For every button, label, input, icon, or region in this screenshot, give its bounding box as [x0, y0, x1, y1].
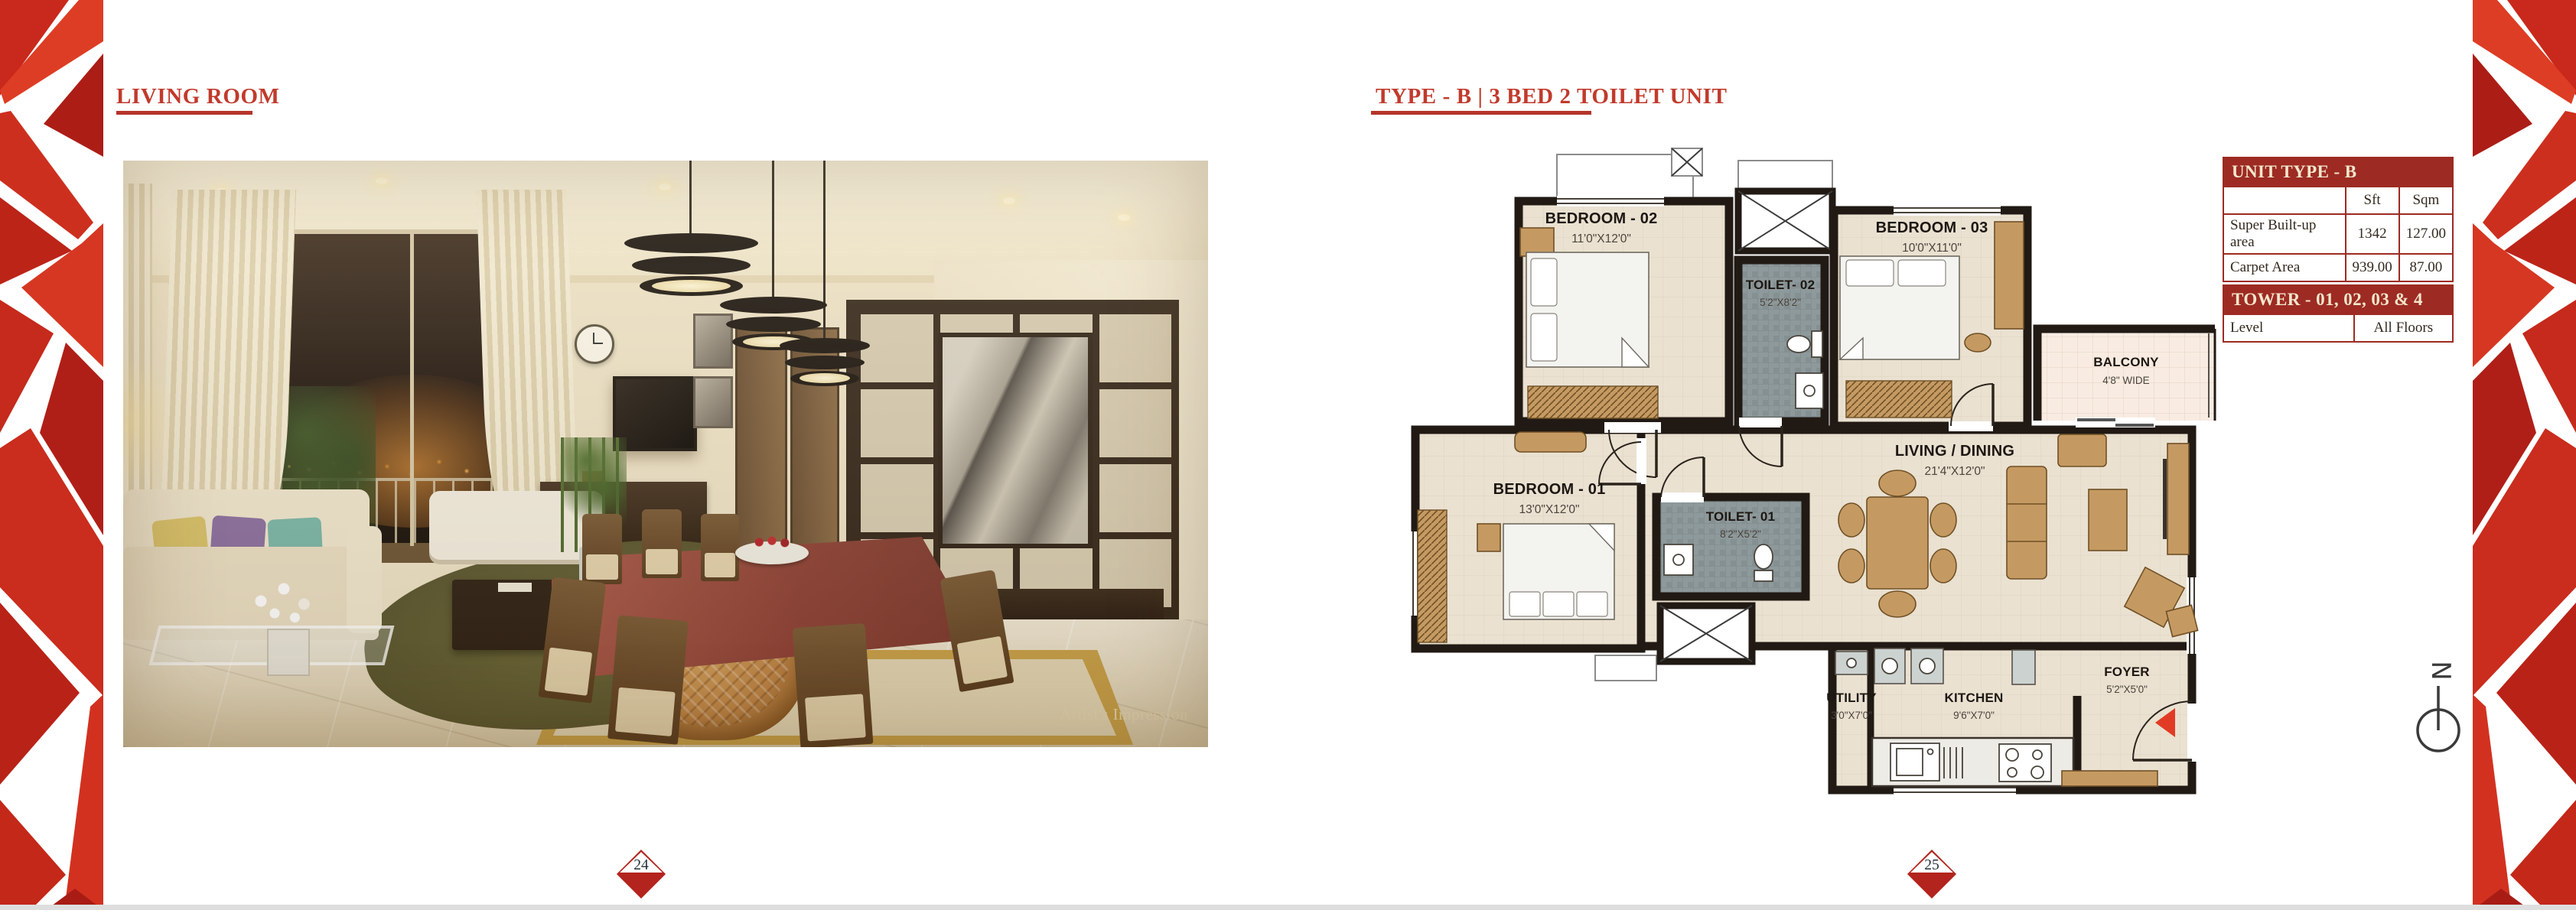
tower-table-header: TOWER - 01, 02, 03 & 4: [2223, 285, 2453, 314]
page-number: 25: [1924, 857, 1939, 873]
page-bottom-edge: [0, 905, 2576, 910]
room-dims: 9'6"X7'0": [1953, 710, 1995, 721]
flowers: [238, 574, 330, 635]
room-dims: 5'2"X5'0": [2106, 684, 2148, 695]
pendant-lamp: [780, 338, 870, 387]
brochure-spread: LIVING ROOM: [0, 0, 2576, 910]
balcony-slider: [2076, 418, 2155, 427]
unit-table-header: UNIT TYPE - B: [2223, 158, 2453, 187]
col-header-sft: Sft: [2346, 187, 2399, 214]
page-number: 24: [633, 857, 649, 873]
room-dims: 5'2"X8'2": [1760, 297, 1801, 308]
dining-chair: [642, 509, 682, 578]
right-page-title: TYPE - B | 3 BED 2 TOILET UNIT: [1376, 84, 1728, 109]
room-dims: 3'0"X7'0": [1831, 710, 1872, 721]
right-title-rule: [1371, 111, 1591, 115]
left-title-rule: [116, 111, 252, 115]
page-marker: 25: [1907, 849, 1957, 899]
left-edge-art: [0, 0, 103, 910]
room-label: LIVING / DINING: [1895, 443, 2014, 460]
left-page-title: LIVING ROOM: [116, 84, 280, 109]
room-label: BALCONY: [2093, 355, 2159, 369]
room-dims: 11'0"X12'0": [1571, 232, 1631, 245]
wall-clock: [575, 324, 614, 364]
table-row: Super Built-up area 1342 127.00: [2223, 214, 2453, 254]
room-label: BEDROOM - 02: [1545, 210, 1658, 227]
svg-text:N: N: [2425, 661, 2456, 680]
tower-table: TOWER - 01, 02, 03 & 4 Level All Floors: [2223, 284, 2454, 343]
artwork-panel: [938, 333, 1093, 548]
room-label: KITCHEN: [1945, 691, 2004, 705]
north-icon: N: [2402, 654, 2479, 769]
lift-shaft: [1738, 191, 1832, 251]
dining-chair: [607, 615, 689, 744]
page-marker: 24: [616, 849, 666, 899]
room-label: BEDROOM - 03: [1876, 219, 1988, 236]
room-dims: 21'4"X12'0": [1925, 465, 1985, 478]
pendant-lamp: [624, 233, 758, 299]
duct-box: [1672, 148, 1702, 176]
room-label: UTILITY: [1826, 691, 1877, 705]
right-edge-art: [2473, 0, 2576, 910]
room-dims: 10'0"X11'0": [1902, 242, 1962, 255]
dining-chair: [793, 623, 874, 747]
room-label: TOILET- 01: [1706, 509, 1776, 524]
bedroom-02-furniture: [1520, 228, 1658, 418]
room-dims: 4'8" WIDE: [2102, 375, 2149, 386]
room-label: FOYER: [2104, 665, 2150, 679]
room-dims: 13'0"X12'0": [1519, 503, 1580, 516]
room-label: TOILET- 02: [1746, 278, 1816, 292]
room-dims: 8'2"X5'2": [1720, 528, 1761, 540]
lift-shaft-2: [1660, 606, 1752, 661]
room-label: BEDROOM - 01: [1493, 481, 1606, 498]
photo-caption: Artist's Impression: [1060, 705, 1188, 724]
dining-chair: [701, 514, 739, 581]
unit-type-table: UNIT TYPE - B Sft Sqm Super Built-up are…: [2223, 157, 2454, 282]
table-row: Carpet Area 939.00 87.00: [2223, 254, 2453, 281]
table-row: Level All Floors: [2223, 314, 2453, 342]
col-header-sqm: Sqm: [2399, 187, 2453, 214]
living-room-photo: Artist's Impression: [123, 161, 1208, 747]
picture-frame: [693, 376, 733, 428]
dining-chair: [582, 514, 622, 584]
floor-plan: BEDROOM - 02 11'0"X12'0" TOILET- 02 5'2"…: [1404, 138, 2223, 818]
